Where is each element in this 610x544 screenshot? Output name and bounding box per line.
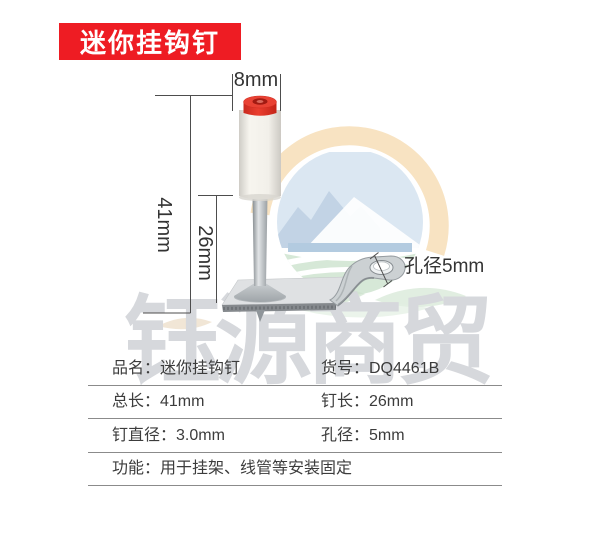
nail-pin: [253, 196, 268, 286]
spec-table: 品名：迷你挂钩钉 货号：DQ4461B 总长：41mm 钉长：26mm 钉直径：…: [88, 352, 502, 486]
spec-function: 功能：用于挂架、线管等安装固定: [88, 452, 502, 485]
dim-label-total-length: 41mm: [154, 197, 174, 253]
cylinder-body: [239, 110, 281, 200]
spec-item-number: 货号：DQ4461B: [321, 352, 502, 385]
table-row: 总长：41mm 钉长：26mm: [88, 386, 502, 420]
table-row: 品名：迷你挂钩钉 货号：DQ4461B: [88, 352, 502, 386]
nail-tip: [256, 310, 265, 322]
cylinder-shadow: [239, 194, 281, 201]
red-cap: [244, 96, 277, 116]
spec-total-length: 总长：41mm: [88, 385, 321, 418]
spec-hole-diameter: 孔径：5mm: [321, 419, 502, 452]
spec-product-name: 品名：迷你挂钩钉: [88, 352, 321, 385]
spec-nail-length: 钉长：26mm: [321, 385, 502, 418]
dim-label-pin-length: 26mm: [195, 225, 215, 281]
dim-label-hole-diameter: 孔径5mm: [404, 251, 484, 278]
dim-label-cap-width: 8mm: [228, 70, 284, 90]
spec-nail-diameter: 钉直径：3.0mm: [88, 419, 321, 452]
table-row: 钉直径：3.0mm 孔径：5mm: [88, 419, 502, 453]
product-title-badge: 迷你挂钩钉: [59, 23, 241, 60]
product-detail-image: 钰源商贸: [0, 0, 610, 544]
table-row: 功能：用于挂架、线管等安装固定: [88, 453, 502, 487]
